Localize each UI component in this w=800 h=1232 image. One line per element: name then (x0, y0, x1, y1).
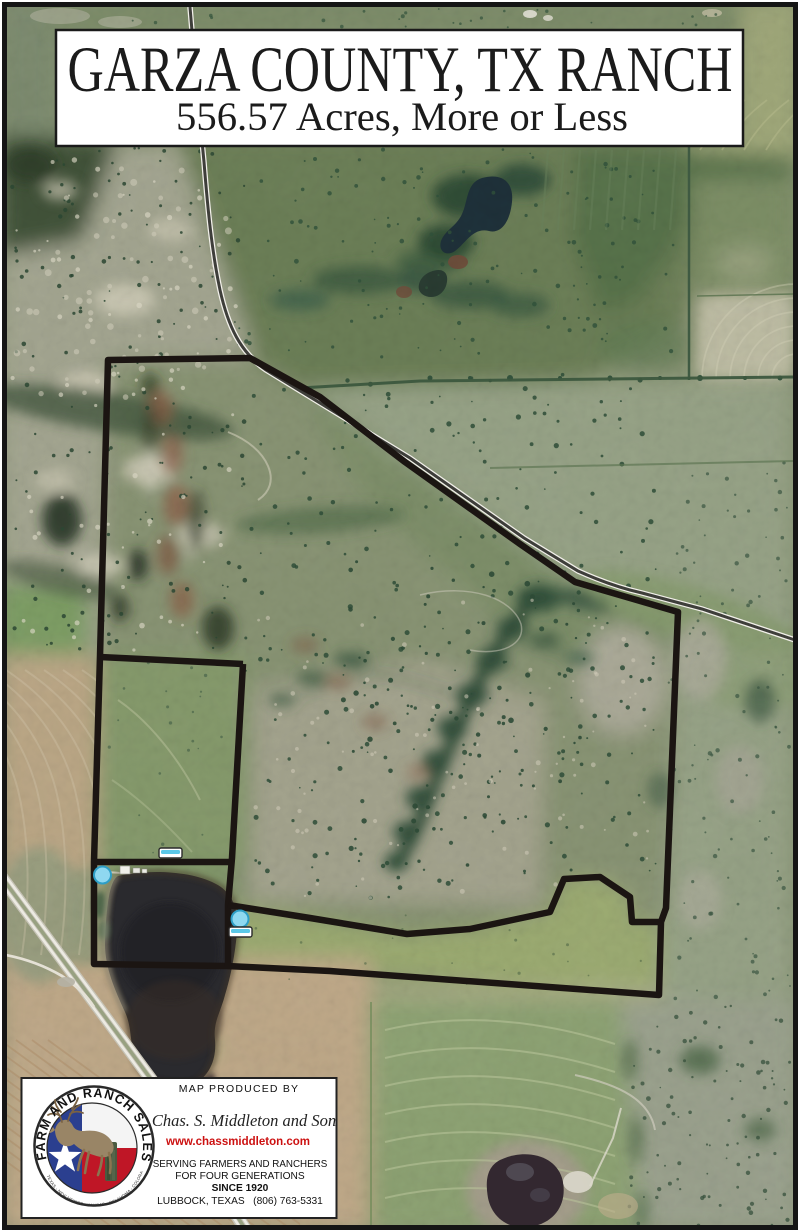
svg-text:SINCE 1920: SINCE 1920 (212, 1183, 269, 1194)
svg-text:LUBBOCK, TEXAS (806) 763-533: LUBBOCK, TEXAS (806) 763-5331 (157, 1196, 323, 1207)
svg-text:Chas. S. Middleton and Son: Chas. S. Middleton and Son (152, 1111, 336, 1130)
svg-text:www.chassmiddleton.com: www.chassmiddleton.com (165, 1136, 310, 1148)
svg-text:MAP PRODUCED BY: MAP PRODUCED BY (179, 1083, 300, 1095)
svg-text:SERVING FARMERS AND RANCHERS: SERVING FARMERS AND RANCHERS (153, 1159, 328, 1170)
svg-text:556.57 Acres, More or Less: 556.57 Acres, More or Less (176, 94, 628, 139)
svg-text:FOR FOUR GENERATIONS: FOR FOUR GENERATIONS (175, 1171, 305, 1182)
